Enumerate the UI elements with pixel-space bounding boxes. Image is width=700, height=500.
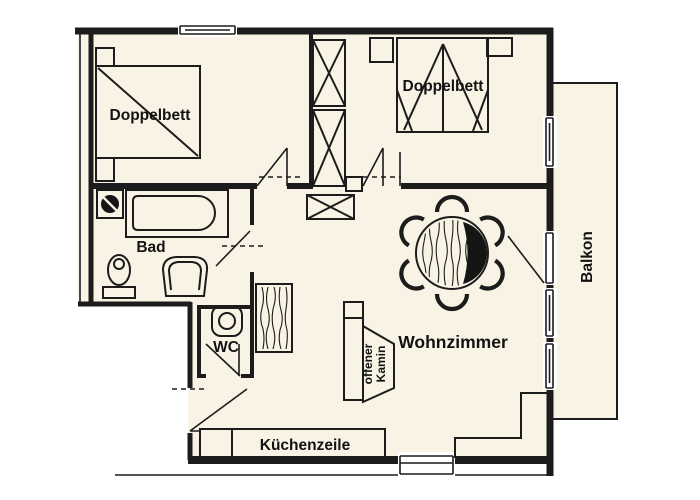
bedroom2-label: Doppelbett [403,78,484,95]
fireplace-label-line1: offener [361,343,375,384]
wc-label: WC [213,339,239,356]
window-living2-icon [543,342,557,390]
floor-plan: Doppelbett Doppelbett [0,0,700,500]
kitchen-label: Küchenzeile [260,437,351,454]
window-living1-icon [543,288,557,338]
living-room-label: Wohnzimmer [398,332,508,352]
bedroom1-label: Doppelbett [110,107,191,124]
window-bedroom2-icon [543,116,557,168]
kitchen-unit: Küchenzeile [200,429,385,457]
window-top-icon [178,24,237,37]
floor-plan-drawing: Doppelbett Doppelbett [0,0,700,500]
fireplace-label-line2: Kamin [374,346,388,383]
balcony-label: Balkon [579,231,596,283]
bathroom-label: Bad [136,239,165,256]
shelf-icon [256,284,292,352]
wall-pier [346,177,362,191]
window-bottom-icon [398,452,455,479]
